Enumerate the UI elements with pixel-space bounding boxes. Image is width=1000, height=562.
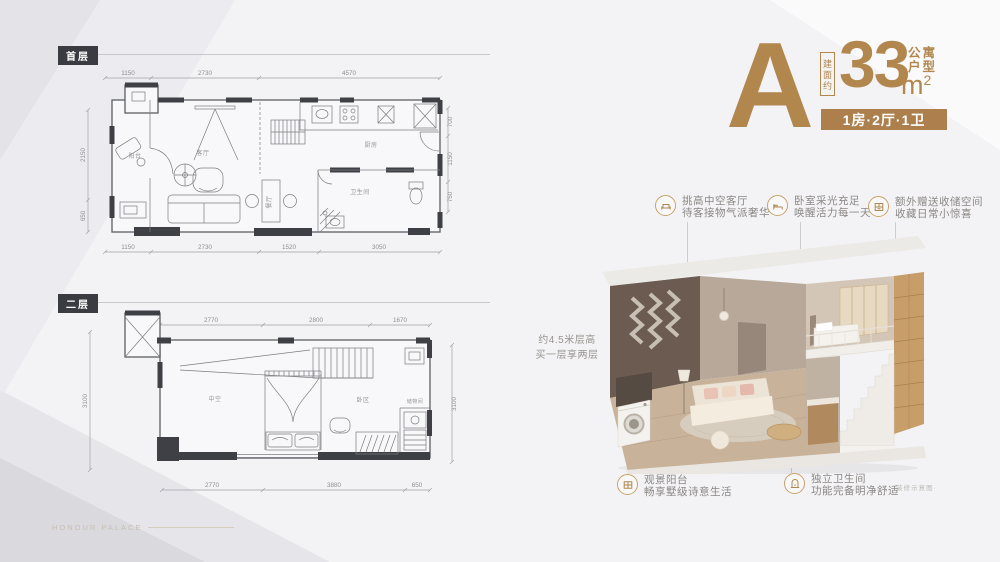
callout-line: 独立卫生间 <box>811 473 899 485</box>
sofa-icon <box>655 195 676 216</box>
render-caption: ·装修示意图· <box>893 482 937 492</box>
layout-badge: 1房·2厅·1卫 <box>821 109 947 130</box>
callout-living: 挑高中空客厅 待客接物气派奢华 <box>655 195 770 219</box>
area-prefix-box: 建面约 <box>820 52 835 96</box>
callout-bedroom: 卧室采光充足 唤醒活力每一天 <box>767 195 871 219</box>
bed-icon <box>767 195 788 216</box>
dim: 2150 <box>80 148 87 163</box>
second-floor-rule <box>94 302 490 303</box>
callout-line: 挑高中空客厅 <box>682 195 770 207</box>
pendant-lamp <box>720 312 729 321</box>
pillow <box>816 322 833 332</box>
dim: 2800 <box>309 317 324 324</box>
callout-bathroom: 独立卫生间 功能完备明净舒适 <box>784 473 899 497</box>
callout-line: 待客接物气派奢华 <box>682 207 770 219</box>
room-label: 中空 <box>208 395 221 403</box>
dim: 1520 <box>282 244 297 251</box>
coffee-table <box>767 424 801 440</box>
staircase <box>840 354 894 446</box>
watermark-rule <box>148 527 234 528</box>
callout-line: 功能完备明净舒适 <box>811 485 899 497</box>
unit-type-top: 公寓 <box>908 46 937 60</box>
room-label: 餐厅 <box>265 195 273 208</box>
room-label: 厨房 <box>364 141 377 149</box>
poster: 首层 二层 1150 2730 4570 1150 2730 1520 3050… <box>0 0 1000 562</box>
dim: 2770 <box>204 317 219 324</box>
unit-type-label: 公寓 户型 <box>908 46 937 74</box>
callout-storage: 额外赠送收储空间 收藏日常小惊喜 <box>868 196 983 220</box>
dim: 4570 <box>342 70 357 77</box>
dim: 1150 <box>121 244 135 251</box>
room-label: 卧区 <box>356 396 369 404</box>
dim: 700 <box>447 116 454 127</box>
apartment-3d-render <box>588 228 940 474</box>
kitchen-cabinet <box>808 401 838 445</box>
callout-line: 观景阳台 <box>644 474 732 486</box>
wall-niche <box>738 322 766 375</box>
loft-note-line2: 买一层享两层 <box>534 348 600 363</box>
dim: 3100 <box>451 397 458 412</box>
room-label: 阳台 <box>128 152 141 160</box>
unit-letter: A <box>726 28 814 144</box>
first-floor-rule <box>94 54 490 55</box>
sofa-pillow <box>722 386 737 398</box>
area-unit: m2 <box>901 70 931 101</box>
floorplan-first-floor: 1150 2730 4570 1150 2730 1520 3050 2150 … <box>78 56 468 268</box>
loft-note-line1: 约4.5米层高 <box>534 333 600 348</box>
dim: 750 <box>447 191 454 202</box>
balcony-icon <box>617 474 638 495</box>
bathroom-icon <box>784 473 805 494</box>
storage-icon <box>868 196 889 217</box>
brand-watermark: HONOUR PALACE <box>52 523 234 532</box>
callout-line: 畅享墅级诗意生活 <box>644 486 732 498</box>
brand-watermark-text: HONOUR PALACE <box>52 523 142 532</box>
loft-height-note: 约4.5米层高 买一层享两层 <box>534 333 600 363</box>
dim: 650 <box>80 210 87 221</box>
room-label: 卫生间 <box>350 188 370 196</box>
first-floor-label: 首层 <box>58 46 98 65</box>
dim: 3100 <box>82 394 89 409</box>
callout-line: 收藏日常小惊喜 <box>895 208 983 220</box>
unit-m: m <box>901 70 924 100</box>
plan2-walls <box>125 313 430 458</box>
dim: 2730 <box>198 70 213 77</box>
dim: 3880 <box>327 482 342 489</box>
dim: 1150 <box>121 70 135 77</box>
dim: 2730 <box>198 244 213 251</box>
callout-line: 唤醒活力每一天 <box>794 207 871 219</box>
dim: 3050 <box>372 244 387 251</box>
unit-sup: 2 <box>924 72 932 88</box>
callout-line: 卧室采光充足 <box>794 195 871 207</box>
dim: 1150 <box>447 152 454 166</box>
dim: 650 <box>412 482 423 489</box>
unit-type-bottom: 户型 <box>908 60 937 74</box>
sofa-pillow <box>704 388 719 400</box>
ottoman <box>711 431 729 449</box>
dim: 1670 <box>393 317 408 324</box>
area-value: 33 <box>839 31 908 97</box>
plan1-walls <box>112 85 440 232</box>
second-floor-label: 二层 <box>58 294 98 313</box>
dim: 2770 <box>205 482 220 489</box>
callout-line: 额外赠送收储空间 <box>895 196 983 208</box>
sofa-pillow <box>740 384 755 396</box>
room-label: 储物间 <box>407 398 424 405</box>
room-label: 客厅 <box>196 149 209 157</box>
callout-balcony: 观景阳台 畅享墅级诗意生活 <box>617 474 732 498</box>
floorplan-second-floor: 2770 2800 1670 2770 3880 650 3100 3100 <box>78 282 478 504</box>
